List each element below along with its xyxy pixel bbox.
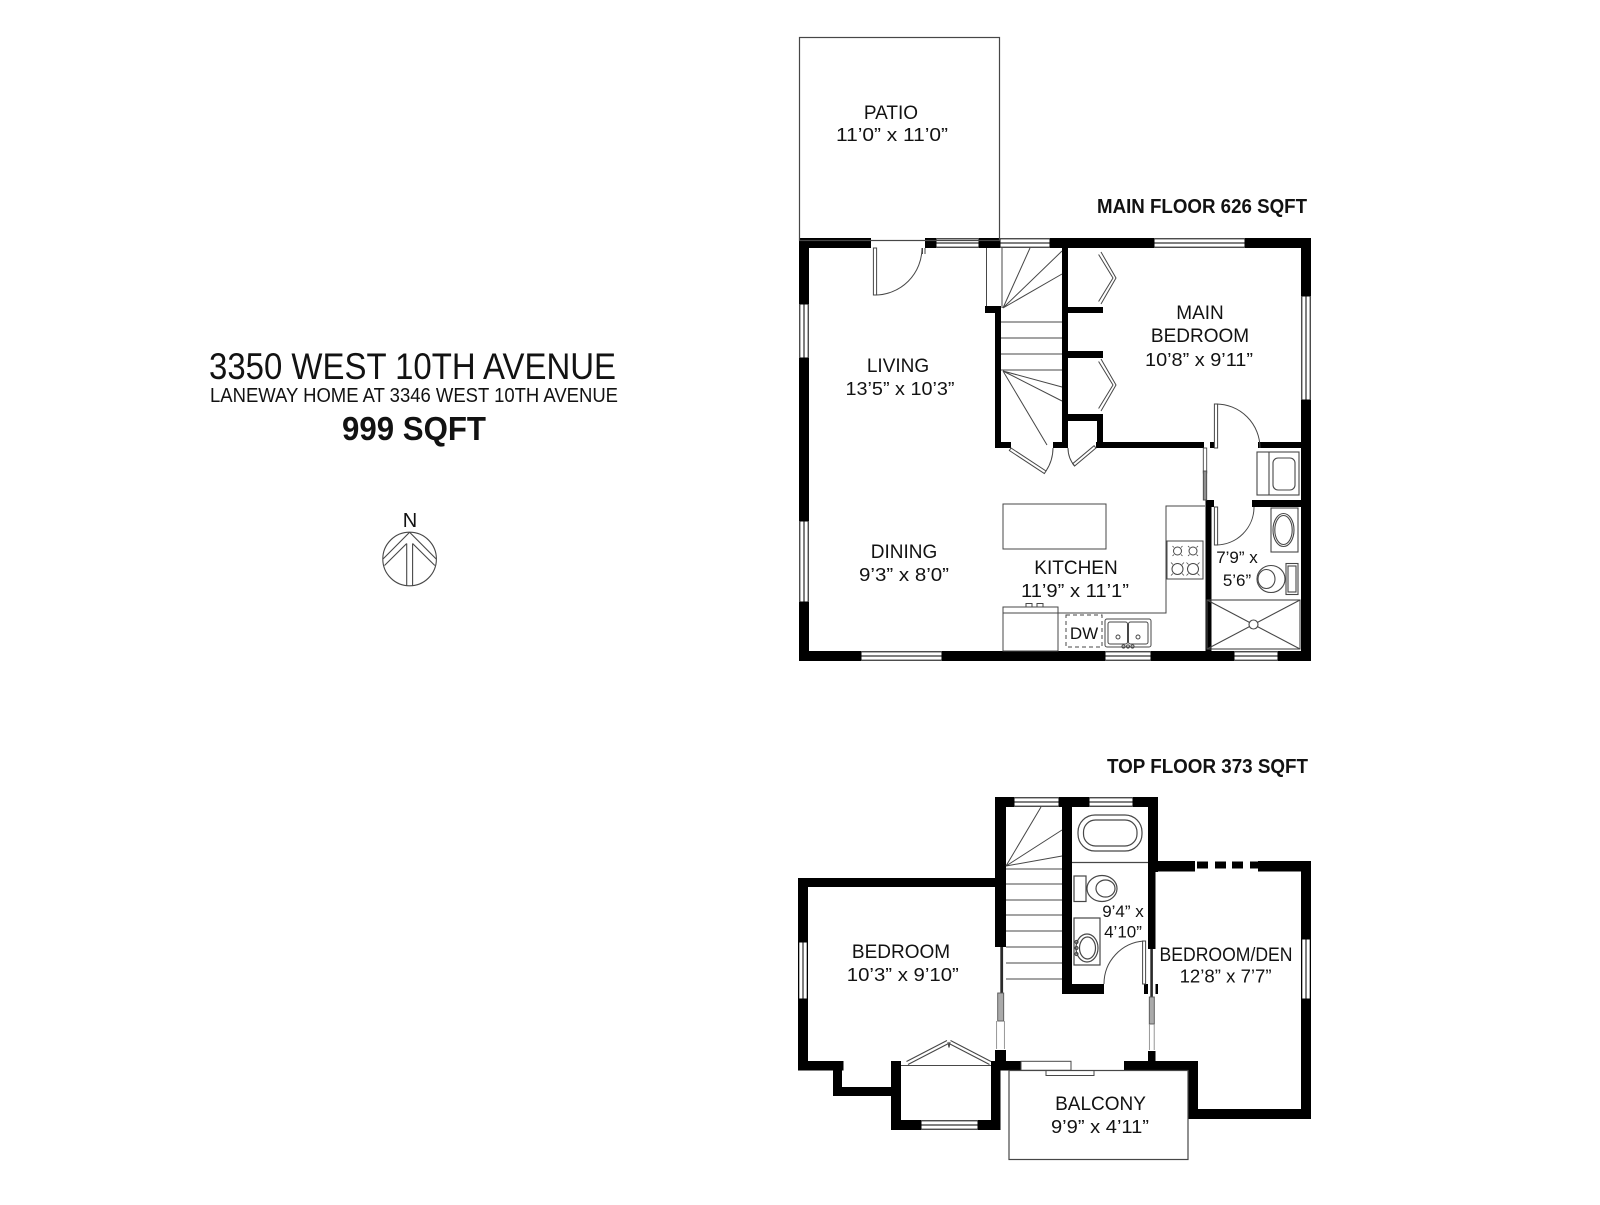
svg-text:3350 WEST 10TH AVENUE: 3350 WEST 10TH AVENUE bbox=[209, 346, 616, 387]
svg-text:5’6”: 5’6” bbox=[1223, 571, 1252, 590]
svg-text:DINING: DINING bbox=[871, 542, 938, 563]
svg-text:999 SQFT: 999 SQFT bbox=[342, 410, 486, 447]
svg-text:N: N bbox=[403, 510, 417, 532]
svg-text:BALCONY: BALCONY bbox=[1055, 1094, 1146, 1115]
svg-text:BEDROOM: BEDROOM bbox=[1151, 326, 1249, 347]
svg-text:13’5” x 10’3”: 13’5” x 10’3” bbox=[846, 379, 955, 399]
svg-text:PATIO: PATIO bbox=[864, 103, 918, 124]
svg-text:9’9” x 4’11”: 9’9” x 4’11” bbox=[1051, 1117, 1149, 1137]
svg-text:9’3” x 8’0”: 9’3” x 8’0” bbox=[859, 565, 949, 585]
svg-text:LANEWAY HOME AT 3346 WEST 10TH: LANEWAY HOME AT 3346 WEST 10TH AVENUE bbox=[210, 385, 618, 407]
svg-text:10’3” x 9’10”: 10’3” x 9’10” bbox=[847, 965, 959, 985]
svg-text:BEDROOM/DEN: BEDROOM/DEN bbox=[1160, 945, 1293, 966]
svg-text:BEDROOM: BEDROOM bbox=[852, 942, 950, 963]
svg-text:10’8” x 9’11”: 10’8” x 9’11” bbox=[1145, 350, 1253, 370]
svg-text:LIVING: LIVING bbox=[867, 356, 929, 377]
svg-text:4’10”: 4’10” bbox=[1104, 923, 1142, 942]
svg-text:MAIN FLOOR 626 SQFT: MAIN FLOOR 626 SQFT bbox=[1097, 196, 1307, 218]
svg-text:9’4” x: 9’4” x bbox=[1102, 902, 1144, 921]
svg-text:TOP FLOOR 373 SQFT: TOP FLOOR 373 SQFT bbox=[1107, 756, 1308, 778]
svg-text:MAIN: MAIN bbox=[1176, 303, 1224, 324]
svg-text:DW: DW bbox=[1070, 624, 1098, 643]
svg-text:KITCHEN: KITCHEN bbox=[1034, 558, 1117, 579]
svg-text:11’0” x 11’0”: 11’0” x 11’0” bbox=[836, 125, 948, 145]
svg-text:11’9” x 11’1”: 11’9” x 11’1” bbox=[1021, 581, 1129, 601]
svg-text:7’9” x: 7’9” x bbox=[1216, 548, 1258, 567]
svg-text:12’8” x 7’7”: 12’8” x 7’7” bbox=[1180, 967, 1272, 987]
